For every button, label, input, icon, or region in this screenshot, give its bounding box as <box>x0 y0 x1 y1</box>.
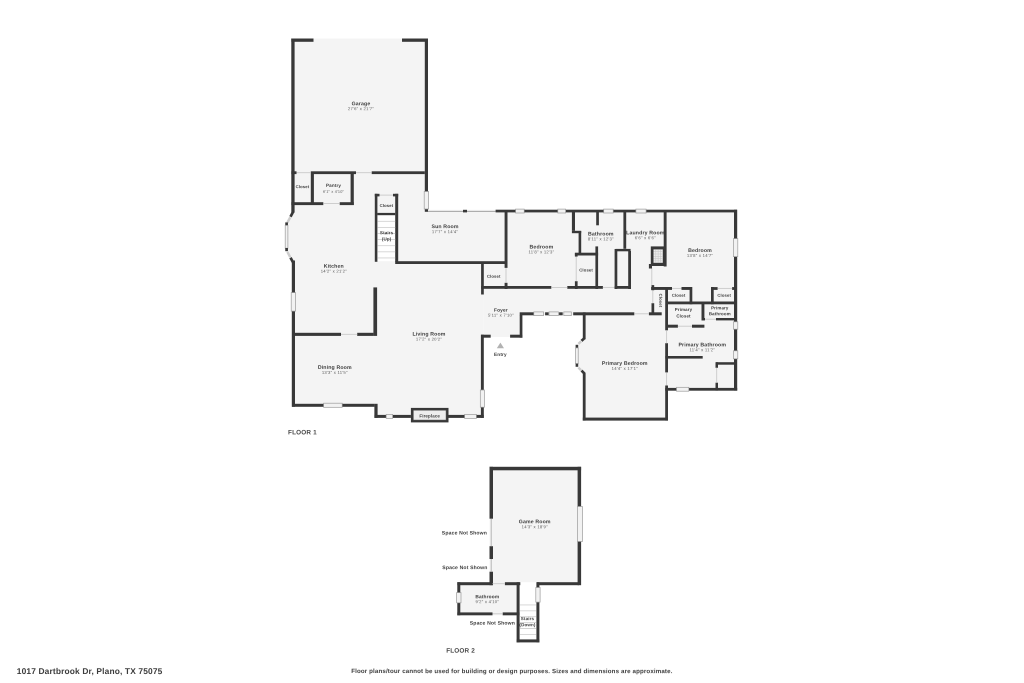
svg-text:14'3" x 18'9": 14'3" x 18'9" <box>522 524 548 529</box>
svg-text:5'11" x 7'10": 5'11" x 7'10" <box>488 313 514 318</box>
svg-text:Closet: Closet <box>296 184 310 189</box>
svg-text:(Down): (Down) <box>519 622 535 627</box>
svg-text:Closet: Closet <box>487 274 501 279</box>
svg-text:Stairs: Stairs <box>521 616 535 621</box>
svg-text:14'4" x 17'1": 14'4" x 17'1" <box>612 366 638 371</box>
svg-text:Closet: Closet <box>717 293 731 298</box>
svg-text:9'2" x 4'10": 9'2" x 4'10" <box>475 599 499 604</box>
svg-text:Space Not Shown: Space Not Shown <box>442 530 487 536</box>
svg-text:14'2" x 21'2": 14'2" x 21'2" <box>321 269 347 274</box>
svg-text:13'8" x 14'7": 13'8" x 14'7" <box>687 253 713 258</box>
svg-text:11'4" x 11'2": 11'4" x 11'2" <box>689 347 715 352</box>
svg-text:Space Not Shown: Space Not Shown <box>442 565 487 571</box>
svg-text:Closet: Closet <box>658 294 663 308</box>
svg-text:Space Not Shown: Space Not Shown <box>470 621 515 627</box>
svg-text:11'8" x 12'3": 11'8" x 12'3" <box>528 249 554 254</box>
svg-text:Primary: Primary <box>711 305 729 310</box>
svg-text:Closet: Closet <box>676 314 691 319</box>
svg-text:8'11" x 12'3": 8'11" x 12'3" <box>588 236 614 241</box>
svg-text:Pantry: Pantry <box>326 183 341 188</box>
svg-text:Entry: Entry <box>494 352 507 357</box>
svg-text:17'2" x 20'2": 17'2" x 20'2" <box>416 337 442 342</box>
svg-text:Closet: Closet <box>579 268 593 273</box>
svg-text:Fireplace: Fireplace <box>419 413 440 418</box>
svg-text:Stairs: Stairs <box>380 230 394 235</box>
svg-text:6'6" x 6'6": 6'6" x 6'6" <box>635 235 656 240</box>
svg-text:Floor plans/tour cannot be use: Floor plans/tour cannot be used for buil… <box>351 668 673 675</box>
svg-text:Closet: Closet <box>672 293 686 298</box>
svg-text:13'3" x 11'5": 13'3" x 11'5" <box>322 370 348 375</box>
svg-text:FLOOR 1: FLOOR 1 <box>288 429 317 436</box>
svg-text:FLOOR 2: FLOOR 2 <box>446 648 475 655</box>
svg-text:Closet: Closet <box>380 203 394 208</box>
svg-text:1017 Dartbrook Dr, Plano, TX 7: 1017 Dartbrook Dr, Plano, TX 75075 <box>17 666 163 676</box>
svg-text:27'6" x 21'7": 27'6" x 21'7" <box>348 106 374 111</box>
svg-text:Primary: Primary <box>675 307 693 312</box>
svg-text:Bathroom: Bathroom <box>709 311 731 316</box>
svg-text:17'7" x 14'4": 17'7" x 14'4" <box>432 229 458 234</box>
svg-text:6'1" x 4'10": 6'1" x 4'10" <box>323 190 345 194</box>
svg-text:(Up): (Up) <box>382 236 392 241</box>
